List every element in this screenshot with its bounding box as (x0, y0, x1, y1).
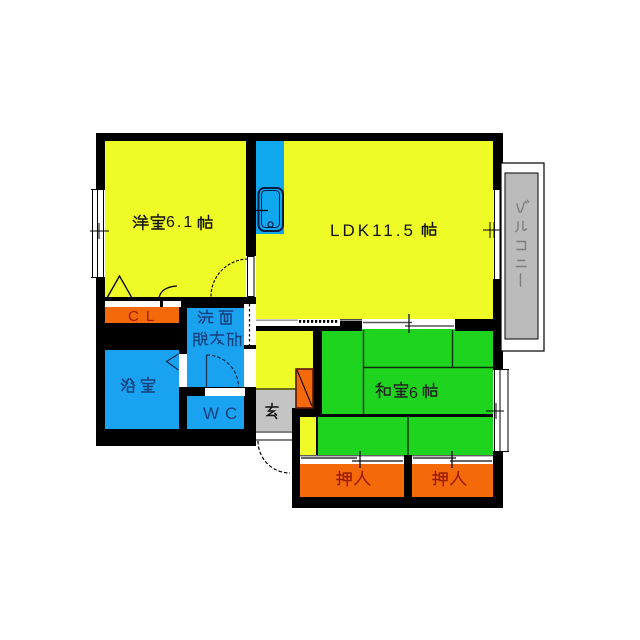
svg-text:CL: CL (128, 308, 161, 325)
svg-text:6: 6 (409, 385, 418, 402)
svg-text:WC: WC (203, 404, 243, 423)
svg-text:6.1: 6.1 (166, 214, 194, 231)
svg-text:LDK11.5: LDK11.5 (330, 221, 416, 240)
